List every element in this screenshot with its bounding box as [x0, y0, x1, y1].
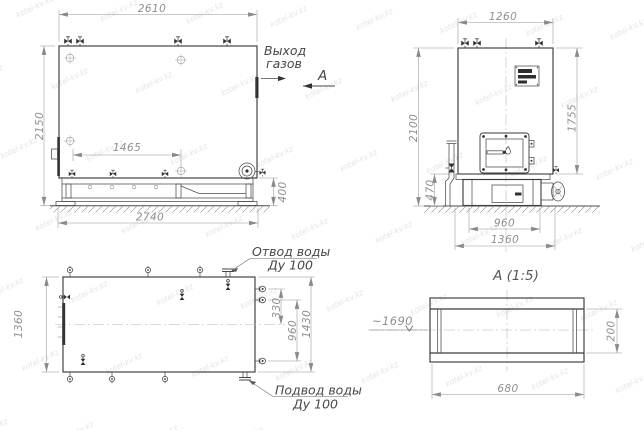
gas-outlet-flange [255, 77, 258, 98]
dim-section-height: 200 [606, 320, 618, 341]
water-inlet-line1: Подвод воды [275, 383, 362, 398]
dim-overall-height: 2150 [34, 112, 46, 140]
dim-plan-width: 1360 [13, 310, 25, 338]
water-outlet-line2: Ду 100 [267, 258, 313, 273]
dim-overall-width: 2610 [138, 3, 166, 15]
dim-nozzle-offset: 330 [271, 297, 283, 318]
dim-front-height: 2100 [408, 114, 420, 142]
gas-outlet-line2: газов [266, 56, 302, 71]
dim-body-height: 1755 [567, 104, 579, 132]
boiler-technical-drawing: kotel-kv.kz kotel-kv.kz [0, 0, 644, 430]
drawing-svg: kotel-kv.kz kotel-kv.kz [0, 0, 644, 430]
dim-base-height: 400 [277, 181, 289, 202]
dim-front-width: 1260 [489, 11, 517, 23]
section-letter: А [317, 68, 327, 84]
water-inlet-line2: Ду 100 [292, 397, 338, 412]
elevation-value: ~1690 [372, 314, 413, 328]
section-title: А (1:5) [492, 268, 539, 284]
dim-base-inner: 1465 [113, 142, 141, 154]
ground-front [424, 206, 600, 213]
dim-plan-overall: 1430 [301, 310, 313, 338]
dim-base-outer-width: 1360 [491, 234, 519, 246]
dim-base-width: 960 [494, 218, 515, 230]
dim-overall-length: 2740 [136, 212, 164, 224]
dim-section-width: 680 [497, 383, 518, 395]
dim-nozzle-span: 960 [287, 320, 299, 341]
dim-front-base-height: 470 [425, 179, 437, 200]
watermark-pattern [0, 0, 644, 430]
